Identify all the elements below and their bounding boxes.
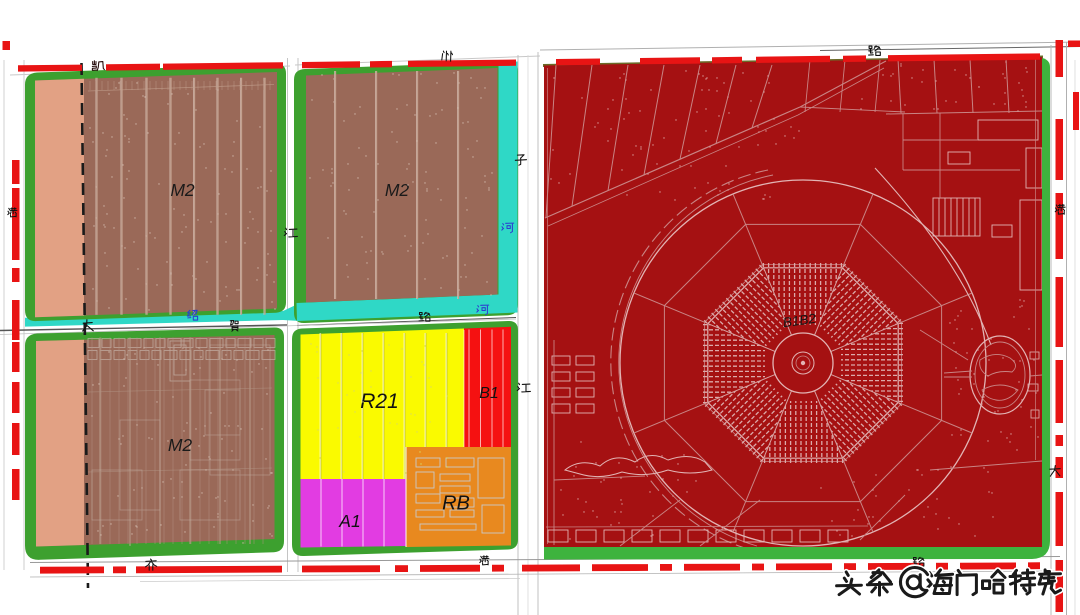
svg-text:B1: B1 <box>479 385 499 402</box>
svg-text:A1: A1 <box>338 511 360 531</box>
svg-text:RB: RB <box>442 493 470 515</box>
svg-text:M2: M2 <box>385 180 410 200</box>
svg-text:M2: M2 <box>170 180 195 200</box>
svg-text:R21: R21 <box>360 390 399 413</box>
svg-text:M2: M2 <box>168 435 193 455</box>
